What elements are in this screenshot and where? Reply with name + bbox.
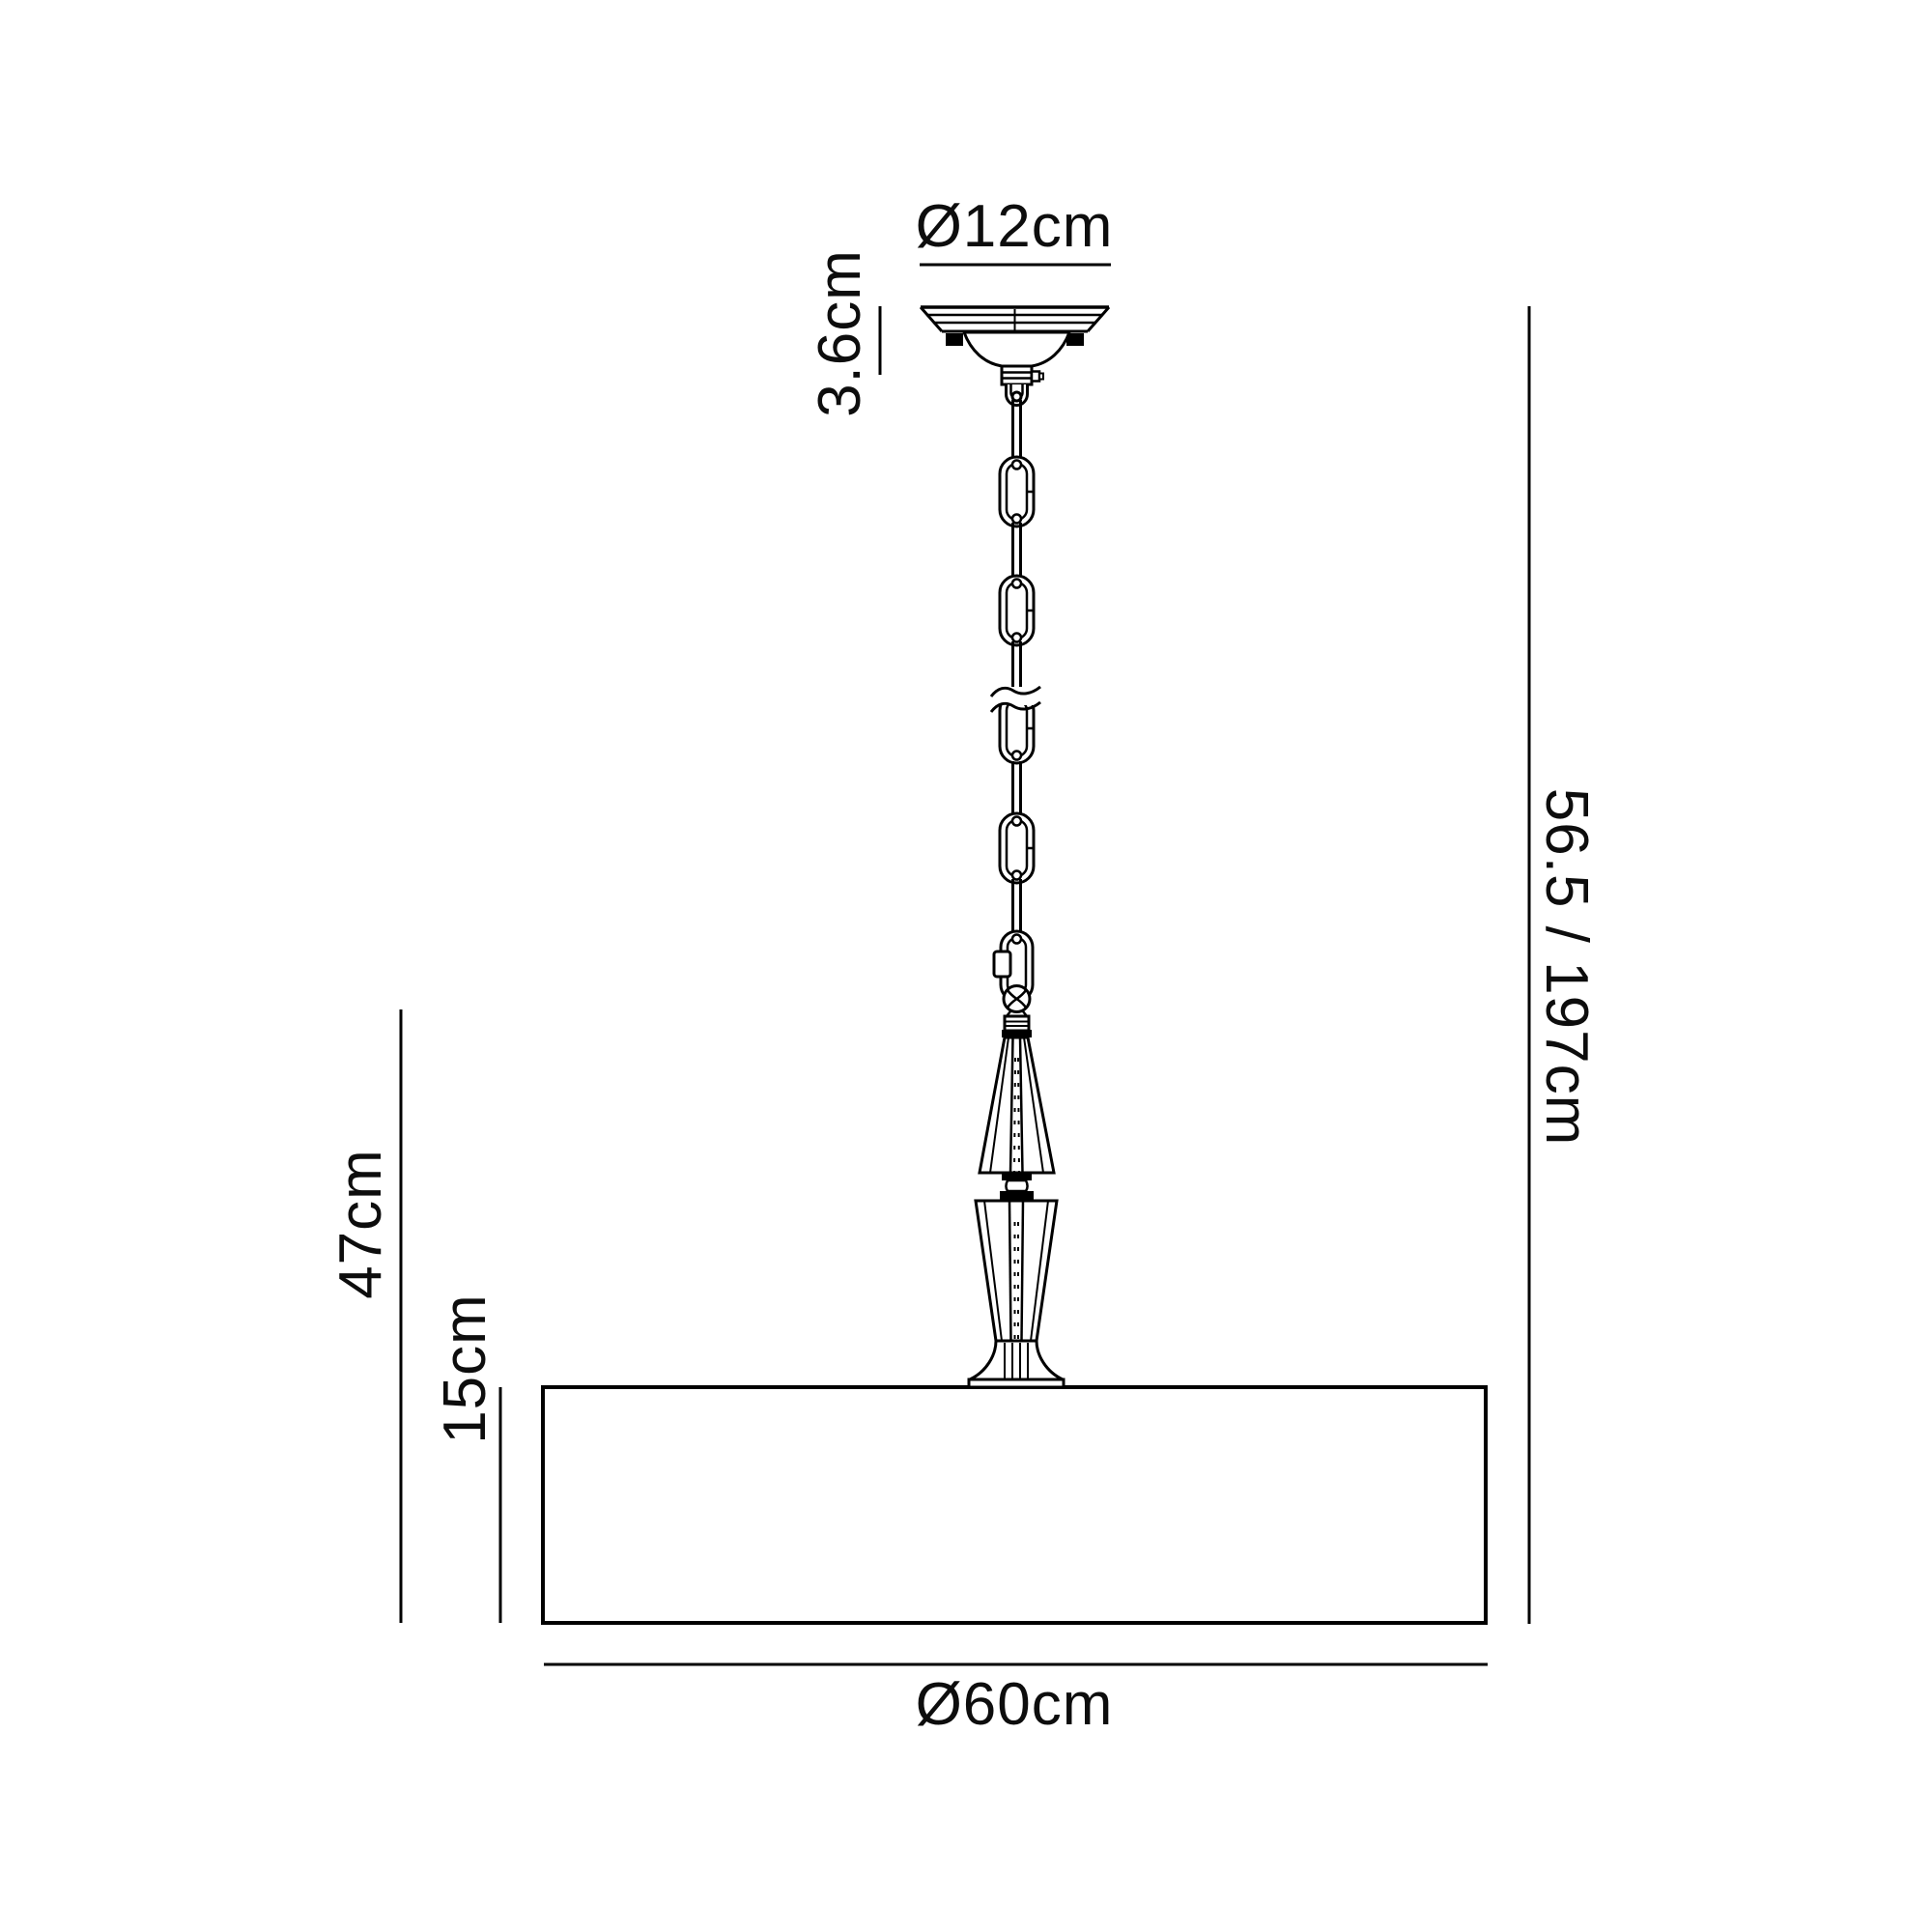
spool-connector (1000, 1173, 1034, 1200)
pendant-light-line-art (0, 0, 1932, 1932)
dim-label-shade-height: 15cm (436, 1293, 496, 1444)
dim-label-fixture-height: 47cm (331, 1149, 391, 1299)
lower-crystal-element (976, 1201, 1057, 1341)
upper-crystal-element (980, 1037, 1054, 1173)
clevis-pin (1012, 392, 1021, 401)
ceiling-canopy (921, 307, 1109, 406)
dim-label-canopy-diameter: Ø12cm (916, 197, 1114, 257)
quick-link-nut (994, 952, 1010, 977)
canopy-bell (964, 332, 1069, 366)
faceted-ball (1004, 986, 1030, 1012)
suspension-chain (980, 400, 1056, 1001)
side-screw (1032, 372, 1039, 382)
threaded-collar (1002, 1011, 1032, 1037)
dim-label-shade-diameter: Ø60cm (916, 1675, 1114, 1735)
trumpet-base (969, 1341, 1064, 1387)
drum-shade (543, 1387, 1486, 1623)
crystal-stem (969, 986, 1064, 1388)
canopy-stem (1002, 366, 1032, 384)
canopy-left-lug (946, 333, 963, 346)
dim-label-canopy-height: 3.6cm (810, 249, 870, 417)
diagram-canvas: Ø12cm 3.6cm 56.5 / 197cm 47cm 15cm Ø60cm (0, 0, 1932, 1932)
dim-label-drop-height: 56.5 / 197cm (1536, 788, 1596, 1146)
